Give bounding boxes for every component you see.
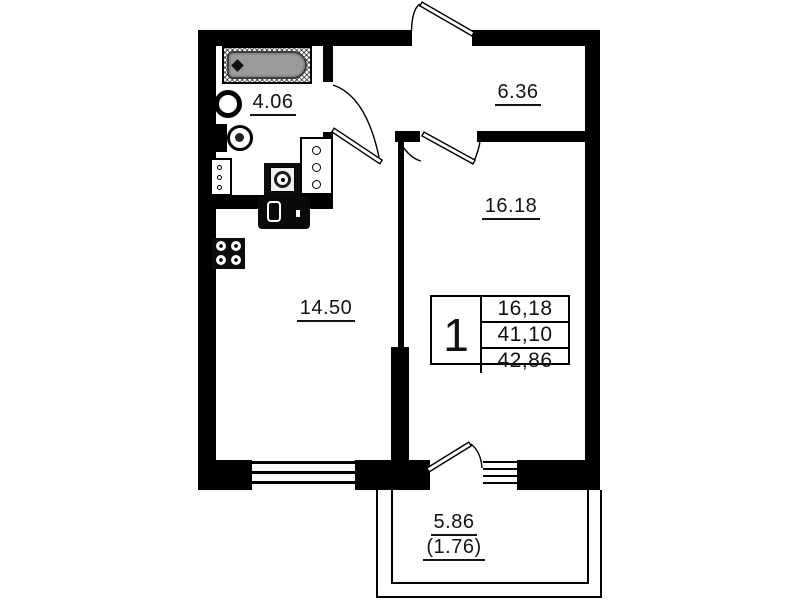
toilet-tank: [212, 124, 227, 152]
door-leaf: [332, 128, 382, 164]
living-area-value: 16,18: [482, 297, 568, 323]
apartment-info-table: 1 16,18 41,10 42,86: [430, 295, 570, 365]
shaft-box-right: [300, 137, 333, 195]
balcony-door: [427, 442, 482, 472]
shaft-dot-icon: [217, 185, 222, 190]
hallway-area-label: 6.36: [483, 82, 553, 103]
bathtub: [222, 46, 312, 84]
water-heater-dash-icon: [296, 210, 300, 217]
wall-top-left: [198, 30, 412, 46]
living-kitchen-area-label: 14.50: [290, 298, 362, 319]
wall-hallway-bottom-right: [477, 131, 585, 142]
wall-bottom-seg2: [355, 460, 430, 490]
door-leaf: [420, 2, 474, 36]
burner-icon: [231, 241, 241, 251]
washing-machine: [264, 163, 301, 197]
water-heater: [258, 196, 310, 229]
toilet-flush-icon: [235, 133, 244, 142]
burner-icon: [231, 255, 241, 265]
shaft-box-left: [210, 158, 232, 196]
toilet: [212, 124, 254, 152]
shaft-circle-icon: [312, 163, 321, 172]
bathroom-door: [332, 85, 382, 164]
door-swing-arc: [471, 444, 482, 468]
residential-area-value: 41,10: [482, 323, 568, 349]
wall-bottom-seg3: [517, 460, 600, 490]
washing-machine-door: [270, 167, 295, 192]
bedroom-area-label: 16.18: [475, 196, 547, 217]
shaft-dot-icon: [217, 175, 222, 180]
door-swing-arc: [333, 85, 379, 157]
stove: [212, 238, 245, 269]
door-leaf: [427, 442, 471, 472]
drum-center-dot: [281, 178, 285, 182]
wall-middle-thin: [398, 131, 404, 347]
floor-plan: 4.06 6.36 16.18 14.50 5.86 (1.76) 1 16,1…: [0, 0, 799, 600]
door-swing-arc: [474, 141, 480, 161]
water-heater-glyph-icon: [267, 201, 281, 222]
burner-icon: [216, 255, 226, 265]
window-balcony: [483, 460, 517, 490]
bathroom-area-label: 4.06: [238, 92, 308, 113]
total-area-value: 42,86: [482, 349, 568, 373]
wall-middle-thick: [391, 347, 409, 460]
shaft-circle-icon: [312, 180, 321, 189]
shaft-circle-icon: [312, 146, 321, 155]
burner-icon: [216, 241, 226, 251]
shaft-dot-icon: [217, 165, 222, 170]
wall-bottom-seg1: [198, 460, 252, 490]
balcony-reduced-area-label: (1.76): [415, 537, 493, 558]
washing-machine-drum-icon: [274, 171, 291, 188]
toilet-bowl: [227, 125, 253, 151]
wall-right: [585, 30, 600, 460]
wall-top-right: [472, 30, 600, 46]
door-leaf: [422, 132, 475, 164]
balcony-area-label: 5.86: [420, 512, 488, 533]
room-count: 1: [432, 297, 482, 373]
window-living-room: [252, 460, 355, 490]
door-swing-arc: [412, 4, 421, 31]
wall-bathroom-right-upper: [323, 46, 333, 82]
entrance-door: [412, 2, 475, 36]
